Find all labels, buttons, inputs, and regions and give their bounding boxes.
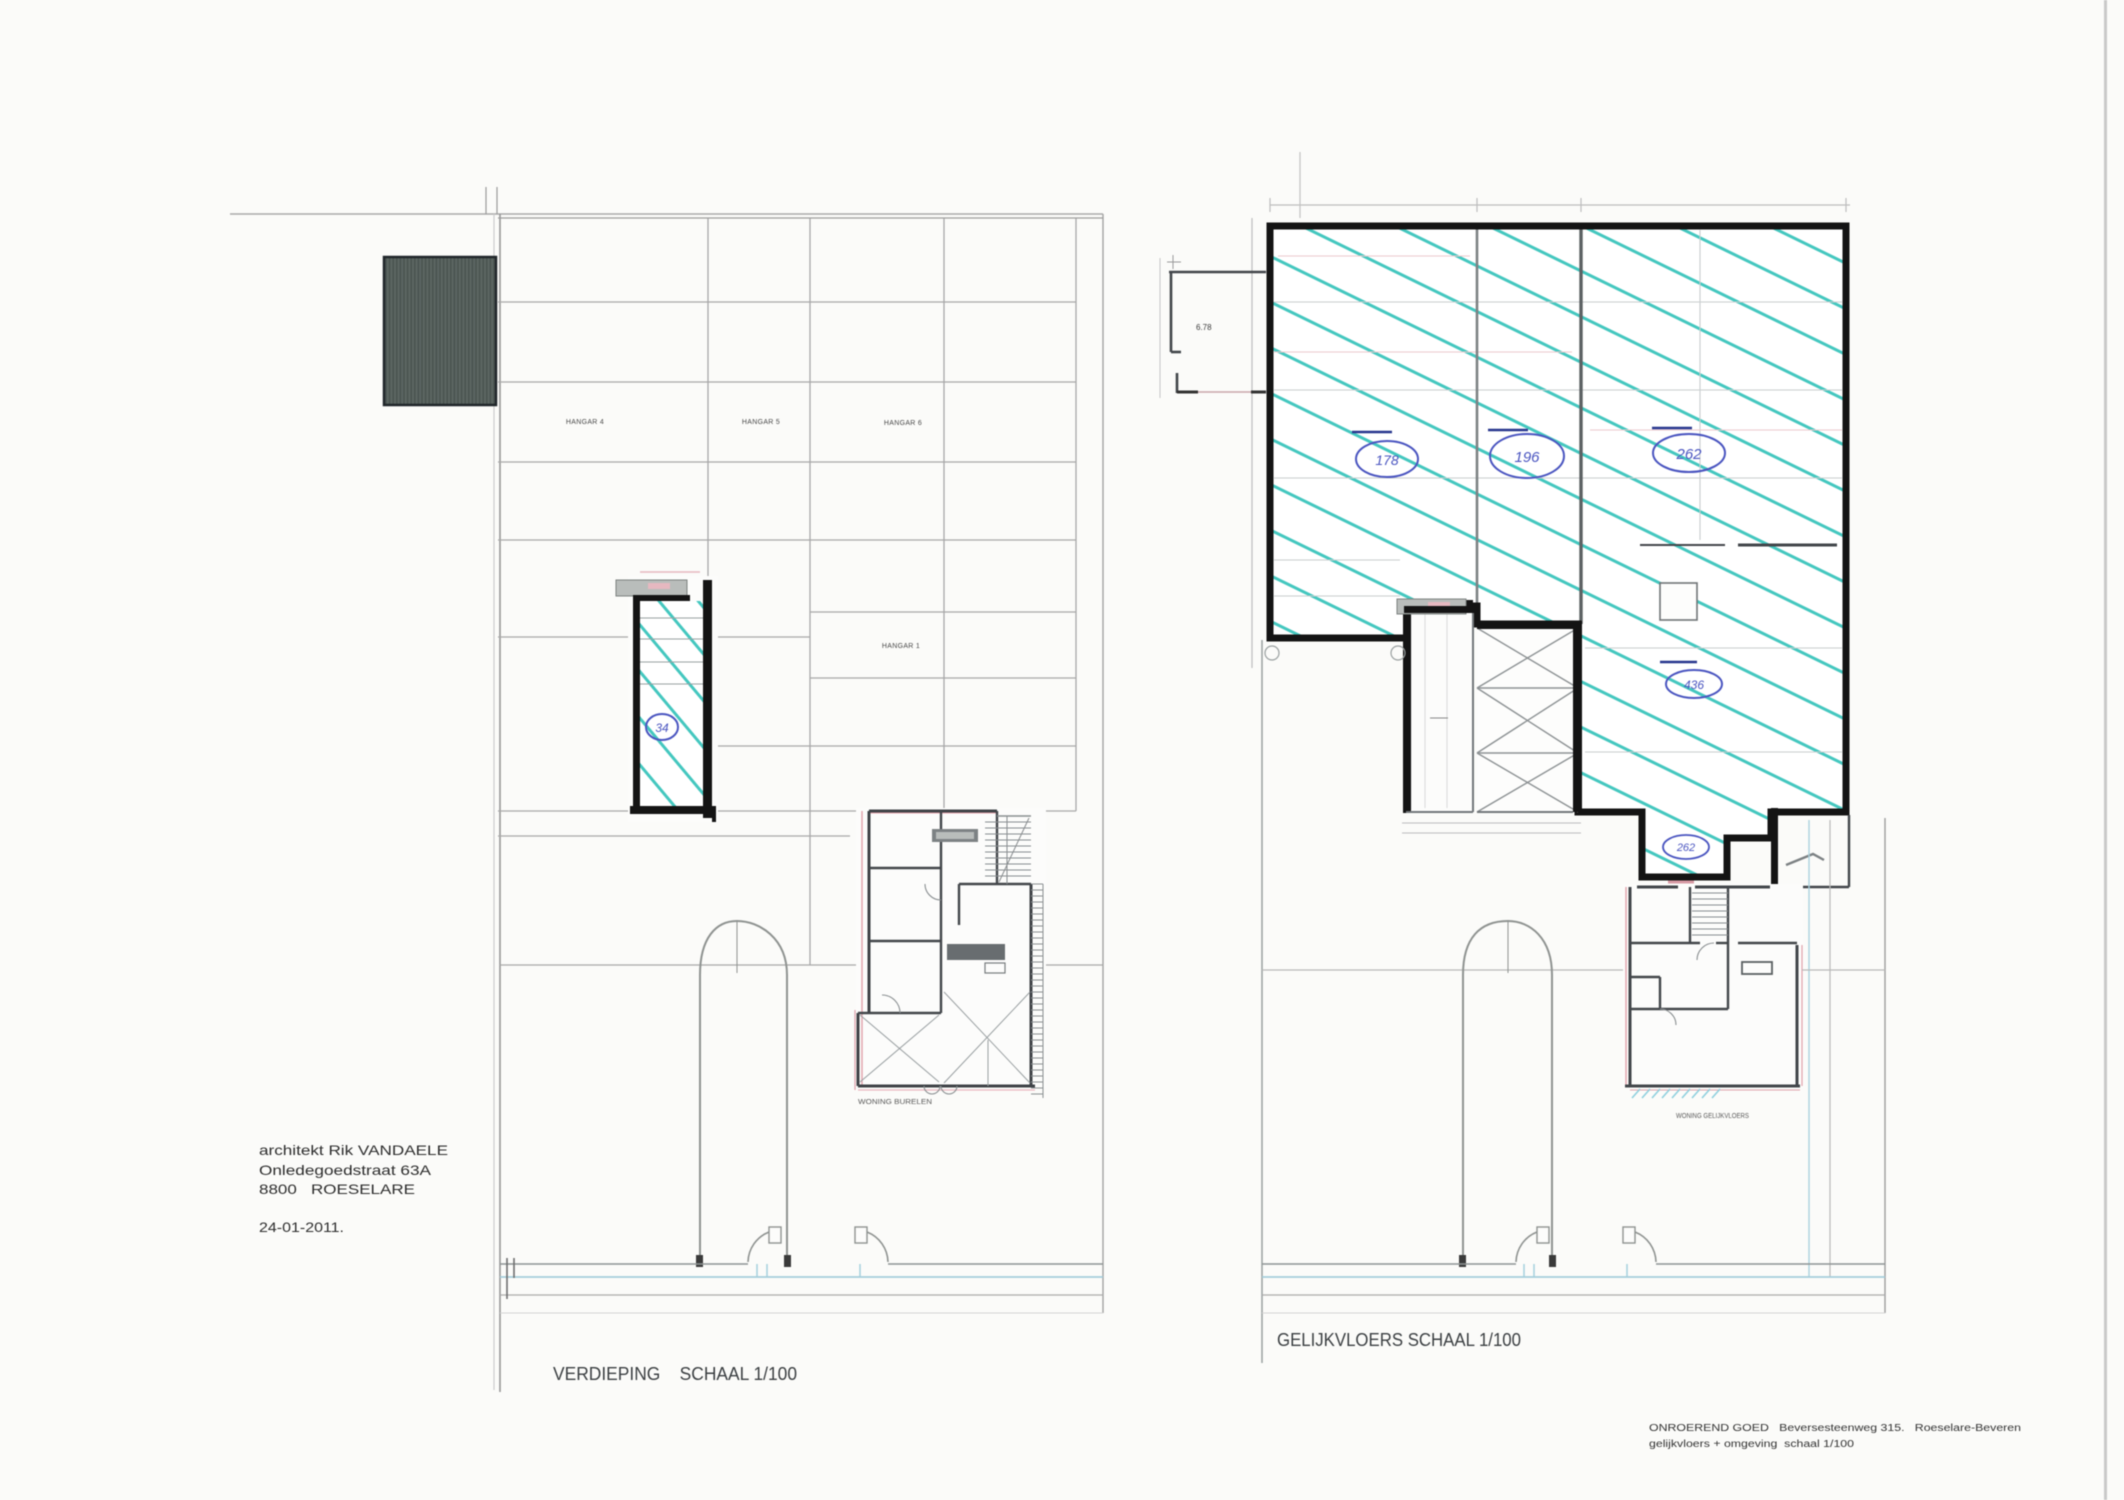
svg-text:WONING BURELEN: WONING BURELEN [858,1099,932,1106]
svg-text:178: 178 [1375,452,1399,468]
svg-text:6.78: 6.78 [1196,323,1212,332]
svg-text:Onledegoedstraat 63A: Onledegoedstraat 63A [259,1162,432,1178]
svg-text:262: 262 [1675,446,1702,463]
svg-text:HANGAR 6: HANGAR 6 [884,420,922,427]
svg-text:HANGAR 5: HANGAR 5 [742,419,780,426]
svg-text:262: 262 [1676,842,1695,854]
svg-text:architekt Rik VANDAELE: architekt Rik VANDAELE [259,1142,448,1158]
svg-text:24-01-2011.: 24-01-2011. [259,1219,344,1235]
svg-text:GELIJKVLOERS SCHAAL 1/100: GELIJKVLOERS SCHAAL 1/100 [1277,1330,1521,1350]
svg-text:gelijkvloers + omgeving schaa: gelijkvloers + omgeving schaal 1/100 [1649,1439,1855,1450]
svg-text:34: 34 [655,721,669,735]
svg-text:HANGAR 4: HANGAR 4 [566,419,604,426]
svg-text:8800 ROESELARE: 8800 ROESELARE [259,1181,415,1197]
svg-text:WONING GELIJKVLOERS: WONING GELIJKVLOERS [1676,1113,1749,1120]
svg-text:196: 196 [1514,449,1540,466]
svg-text:HANGAR 1: HANGAR 1 [882,643,920,650]
svg-text:VERDIEPING SCHAAL 1/100: VERDIEPING SCHAAL 1/100 [553,1364,797,1384]
svg-text:ONROEREND GOED Beversesteenw: ONROEREND GOED Beversesteenweg 315. Roes… [1649,1423,2021,1434]
svg-text:436: 436 [1684,678,1704,692]
